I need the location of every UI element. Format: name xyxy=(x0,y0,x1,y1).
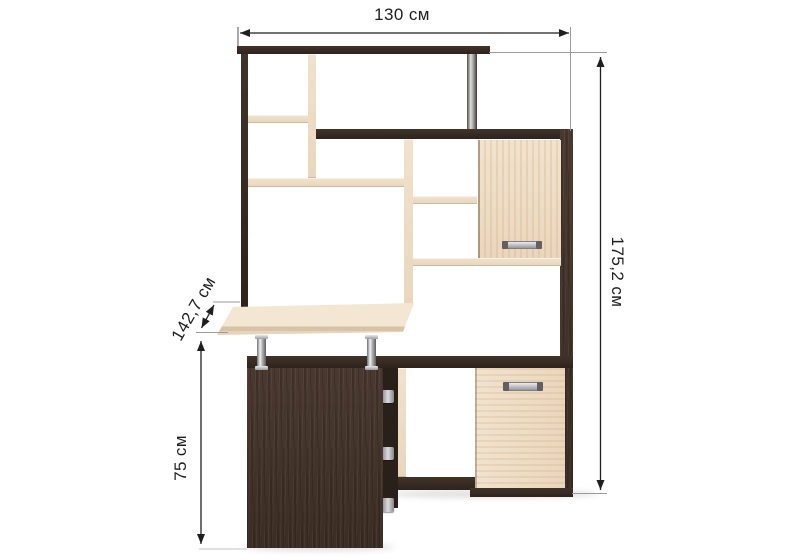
right-base-board xyxy=(470,488,573,497)
hutch-middle-shelf-dark xyxy=(316,129,573,139)
hutch-shelf-b xyxy=(248,178,409,187)
pedestal-drawer-handle-1 xyxy=(382,390,394,403)
lower-divider xyxy=(398,368,406,477)
height-dimension-label: 175,2 см xyxy=(607,237,627,308)
hutch-shelf-c xyxy=(413,196,477,204)
width-dimension-label: 130 см xyxy=(374,5,430,25)
upper-cabinet-door xyxy=(478,140,561,258)
desk-height-dimension-label: 75 см xyxy=(171,435,191,481)
lower-cabinet-door xyxy=(475,368,565,488)
hutch-divider-1 xyxy=(308,54,316,178)
chrome-leg-right xyxy=(367,336,376,369)
diagonal-depth-dimension-label: 142,7 см xyxy=(168,273,221,344)
cabinet-bottom-shelf xyxy=(413,258,561,266)
leg-cap xyxy=(255,335,268,339)
pedestal-drawer-handle-2 xyxy=(382,447,394,460)
pedestal-front xyxy=(247,368,383,548)
hutch-top-board xyxy=(237,46,490,54)
chrome-leg-left xyxy=(257,336,266,369)
leg-cap xyxy=(365,335,378,339)
pedestal-drawer-handle-3 xyxy=(382,498,394,512)
lower-door-handle xyxy=(503,382,543,391)
leg-cap xyxy=(255,366,268,370)
hutch-divider-2 xyxy=(404,139,413,307)
hutch-left-post xyxy=(241,54,248,307)
upper-door-handle xyxy=(502,241,542,249)
hutch-shelf-a xyxy=(248,115,308,123)
leg-cap xyxy=(365,366,378,370)
pedestal-side-panel xyxy=(383,368,398,508)
chrome-support-post xyxy=(467,54,477,130)
dimension-diagram: 130 см 175,2 см 142,7 см 75 см xyxy=(0,0,800,560)
desk-level-shelf-dark xyxy=(247,356,573,368)
lower-shelf-dark xyxy=(388,477,475,490)
